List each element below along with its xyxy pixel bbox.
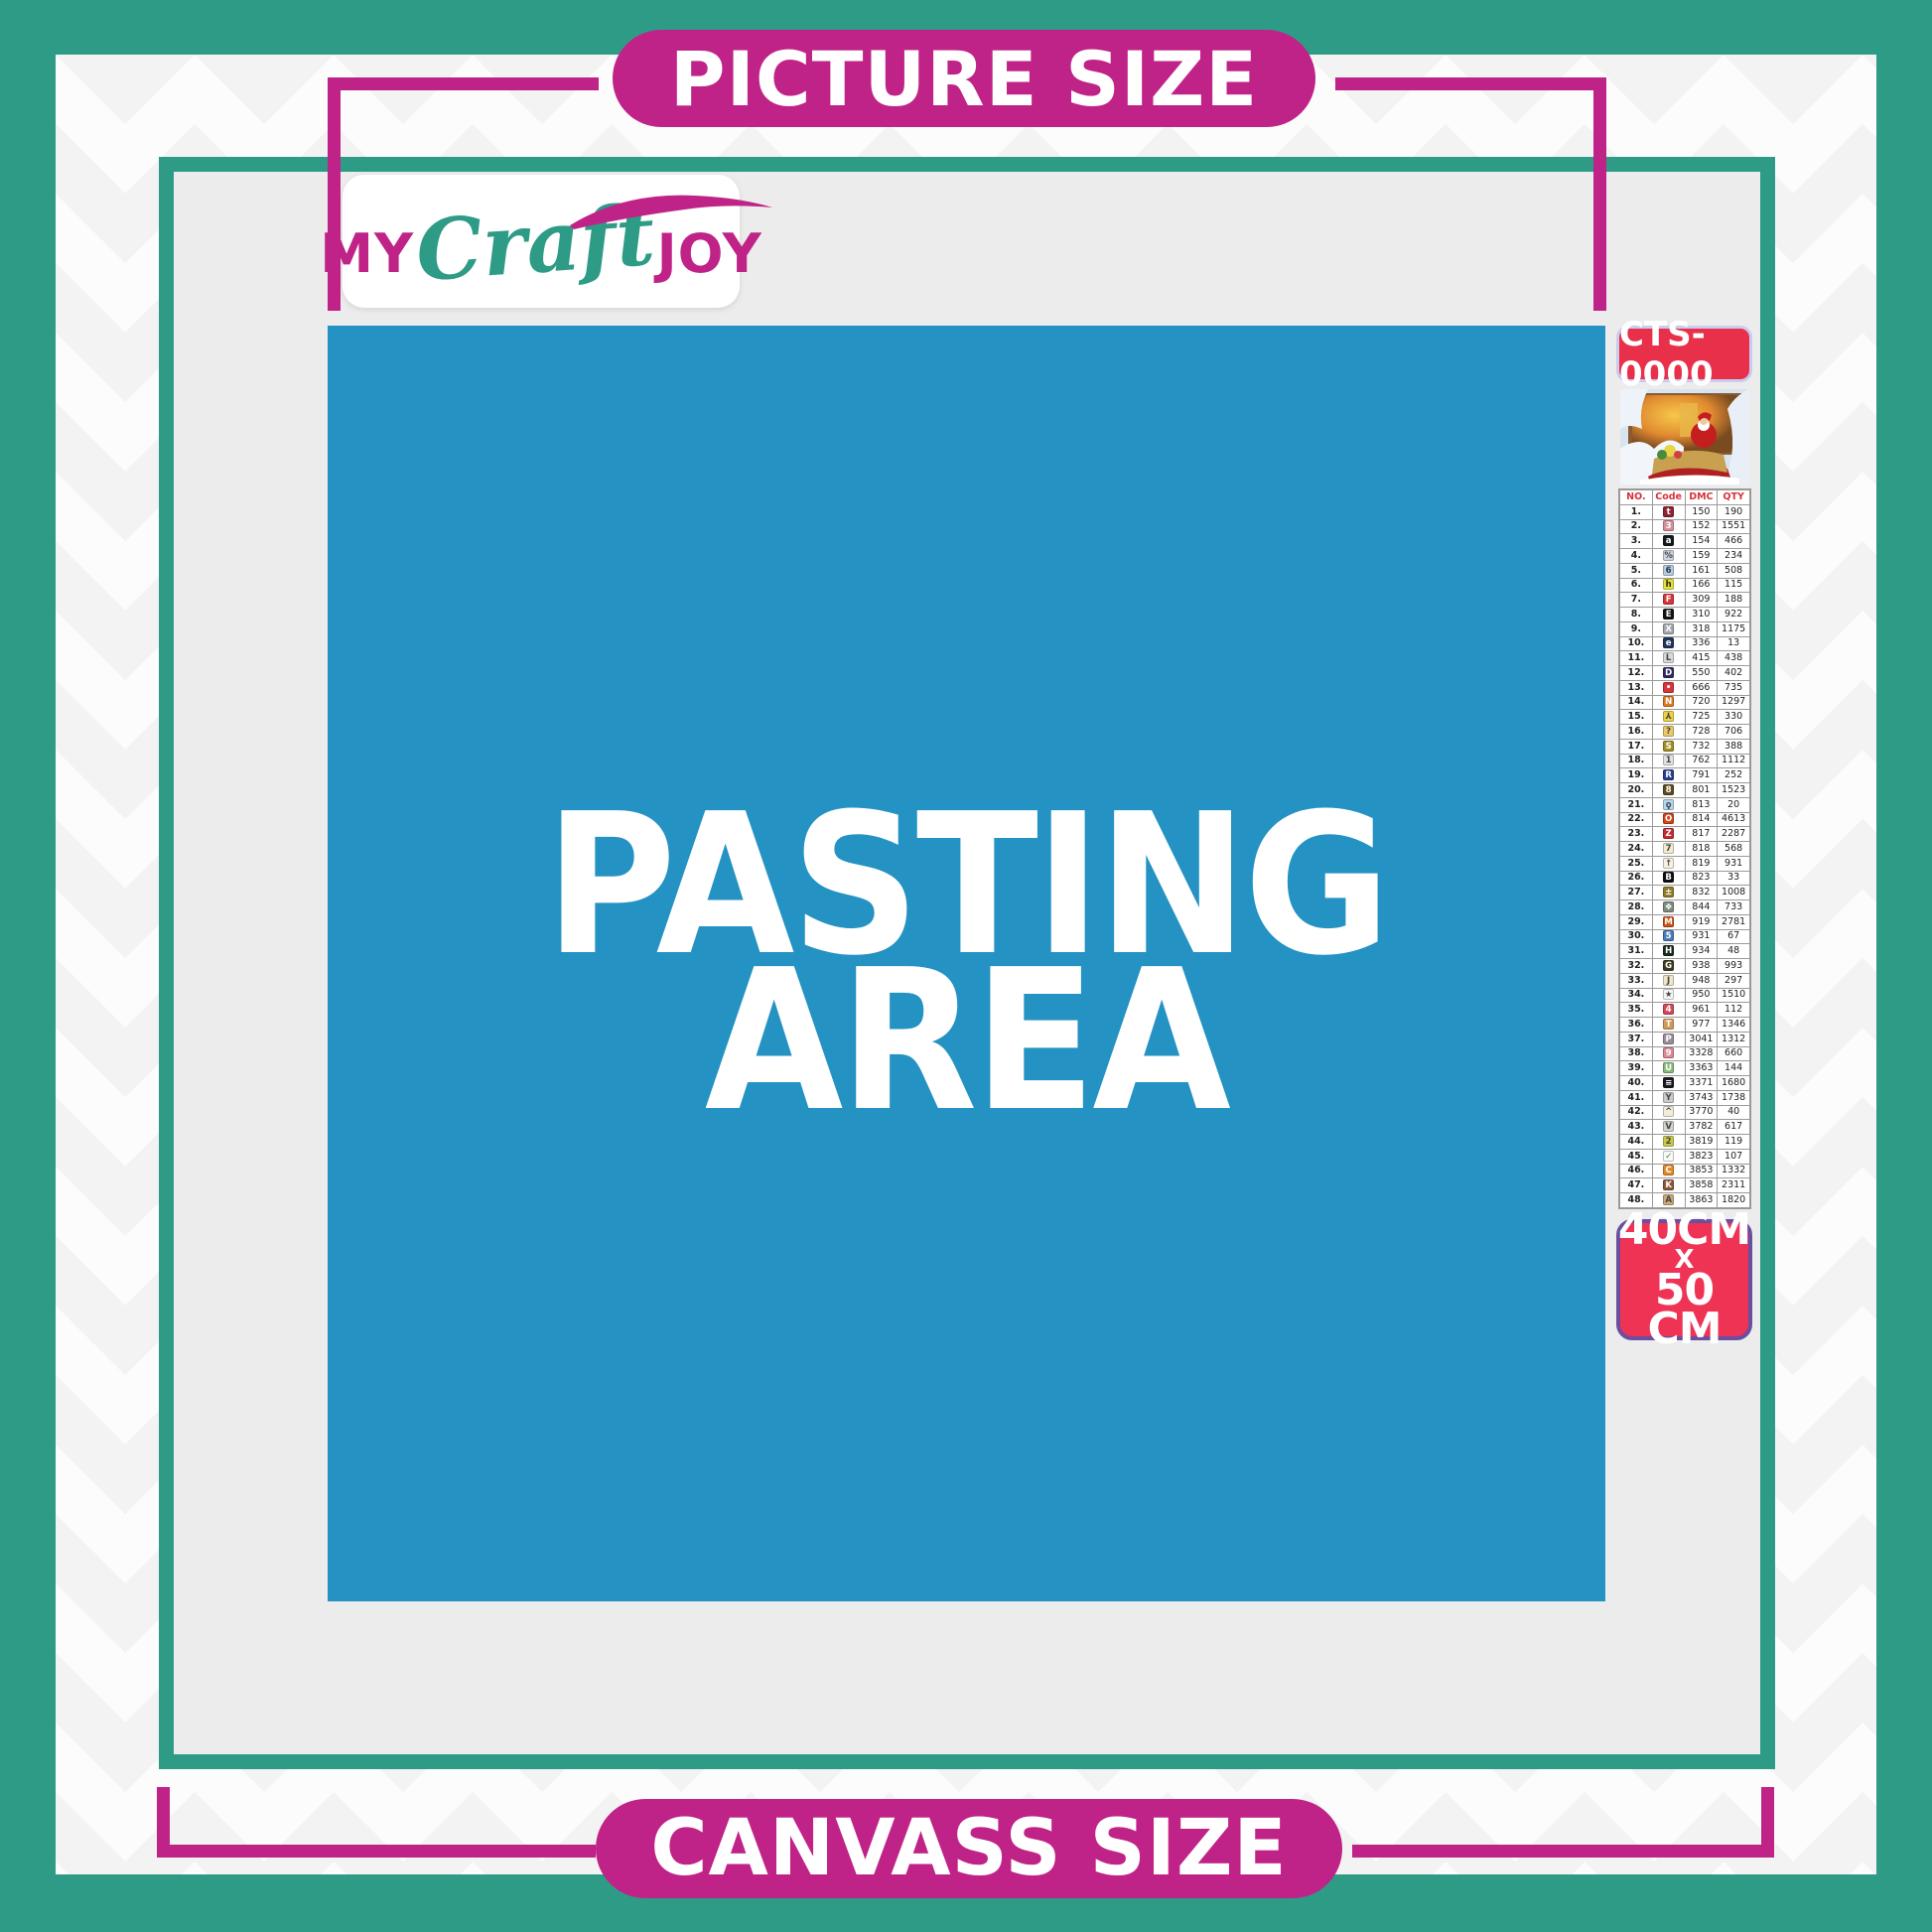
dmc-code: 154 [1685,534,1718,549]
dmc-code: 415 [1685,651,1718,666]
table-header-cell: Code [1652,490,1685,505]
picture-bracket-right-tick [1593,77,1606,311]
table-row: 23.Z8172287 [1620,827,1750,842]
table-row: 14.N7201297 [1620,695,1750,710]
symbol-cell: 6 [1652,563,1685,578]
dmc-code: 3853 [1685,1164,1718,1178]
symbol-chip: T [1663,1019,1674,1030]
symbol-cell: L [1652,651,1685,666]
table-row: 24.7818568 [1620,842,1750,857]
quantity: 733 [1718,900,1750,915]
symbol-cell: ↑ [1652,856,1685,871]
symbol-chip: M [1663,916,1674,927]
quantity: 1346 [1718,1018,1750,1033]
row-number: 5. [1620,563,1653,578]
table-row: 47.K38582311 [1620,1178,1750,1193]
symbol-chip: 2 [1663,1136,1674,1147]
table-row: 20.88011523 [1620,783,1750,798]
quantity: 1332 [1718,1164,1750,1178]
table-row: 42.^377040 [1620,1105,1750,1120]
symbol-cell: ★ [1652,988,1685,1003]
quantity: 466 [1718,534,1750,549]
canvass-bracket-bottom-right-line [1352,1845,1774,1858]
pasting-area-label: PASTING AREA [545,808,1387,1120]
table-row: 7.F309188 [1620,593,1750,608]
symbol-chip: a [1663,535,1674,546]
table-row: 25.↑819931 [1620,856,1750,871]
symbol-chip: Z [1663,828,1674,839]
kit-preview-image [1620,389,1749,484]
table-row: 30.593167 [1620,929,1750,944]
row-number: 8. [1620,608,1653,622]
row-number: 46. [1620,1164,1653,1178]
table-row: 46.C38531332 [1620,1164,1750,1178]
symbol-cell: ⅄ [1652,710,1685,725]
symbol-cell: K [1652,1178,1685,1193]
pasting-area: PASTING AREA [328,326,1605,1601]
table-row: 12.D550402 [1620,666,1750,681]
symbol-chip: • [1663,682,1674,693]
row-number: 41. [1620,1090,1653,1105]
row-number: 43. [1620,1120,1653,1135]
symbol-chip: ± [1663,887,1674,897]
table-row: 41.Y37431738 [1620,1090,1750,1105]
dmc-code: 318 [1685,621,1718,636]
symbol-cell: X [1652,621,1685,636]
quantity: 568 [1718,842,1750,857]
dmc-code: 720 [1685,695,1718,710]
symbol-chip: e [1663,637,1674,648]
row-number: 15. [1620,710,1653,725]
symbol-chip: E [1663,609,1674,620]
table-row: 9.X3181175 [1620,621,1750,636]
row-number: 33. [1620,973,1653,988]
symbol-chip: ⅄ [1663,711,1674,722]
brand-logo-card: MY Craft JOY [343,175,740,308]
dmc-code: 336 [1685,636,1718,651]
row-number: 3. [1620,534,1653,549]
dmc-code: 823 [1685,871,1718,886]
symbol-cell: J [1652,973,1685,988]
row-number: 7. [1620,593,1653,608]
symbol-cell: Z [1652,827,1685,842]
row-number: 25. [1620,856,1653,871]
dmc-code: 817 [1685,827,1718,842]
table-header-cell: DMC [1685,490,1718,505]
dmc-code: 3328 [1685,1046,1718,1061]
table-row: 26.B82333 [1620,871,1750,886]
kit-code-label: CTS-0000 [1619,315,1749,394]
dmc-code: 159 [1685,549,1718,564]
quantity: 735 [1718,680,1750,695]
table-row: 17.S732388 [1620,739,1750,754]
quantity: 388 [1718,739,1750,754]
row-number: 13. [1620,680,1653,695]
symbol-cell: M [1652,914,1685,929]
symbol-chip: 3 [1663,520,1674,531]
quantity: 297 [1718,973,1750,988]
dmc-code: 950 [1685,988,1718,1003]
row-number: 31. [1620,944,1653,959]
quantity: 112 [1718,1003,1750,1018]
dmc-code: 152 [1685,519,1718,534]
symbol-chip: U [1663,1062,1674,1073]
symbol-cell: S [1652,739,1685,754]
row-number: 21. [1620,797,1653,812]
quantity: 188 [1718,593,1750,608]
table-row: 8.E310922 [1620,608,1750,622]
canvass-bracket-right-tick [1761,1787,1774,1858]
dmc-code: 3823 [1685,1149,1718,1164]
symbol-cell: 9 [1652,1046,1685,1061]
table-row: 45.✓3823107 [1620,1149,1750,1164]
dmc-code: 310 [1685,608,1718,622]
quantity: 1008 [1718,886,1750,900]
symbol-chip: ❖ [1663,901,1674,912]
symbol-cell: ❖ [1652,900,1685,915]
picture-bracket-top-right-line [1335,77,1606,90]
quantity: 67 [1718,929,1750,944]
symbol-cell: ? [1652,725,1685,740]
row-number: 29. [1620,914,1653,929]
symbol-chip: P [1663,1034,1674,1044]
table-row: 40.≡33711680 [1620,1076,1750,1091]
quantity: 33 [1718,871,1750,886]
symbol-chip: V [1663,1121,1674,1132]
row-number: 38. [1620,1046,1653,1061]
symbol-chip: C [1663,1165,1674,1175]
dmc-code: 791 [1685,768,1718,783]
symbol-cell: 2 [1652,1135,1685,1150]
symbol-cell: t [1652,504,1685,519]
picture-size-label: PICTURE SIZE [670,35,1258,123]
symbol-chip: N [1663,696,1674,707]
table-row: 1.t150190 [1620,504,1750,519]
symbol-cell: 7 [1652,842,1685,857]
symbol-chip: L [1663,652,1674,663]
symbol-cell: 3 [1652,519,1685,534]
dmc-code: 938 [1685,959,1718,974]
canvass-size-banner: CANVASS SIZE [596,1799,1342,1898]
dmc-code: 762 [1685,754,1718,768]
table-row: 28.❖844733 [1620,900,1750,915]
symbol-chip: S [1663,741,1674,752]
symbol-chip: % [1663,550,1674,561]
quantity: 119 [1718,1135,1750,1150]
dmc-code: 3041 [1685,1032,1718,1046]
dmc-code: 977 [1685,1018,1718,1033]
dmc-code: 3782 [1685,1120,1718,1135]
dmc-code: 934 [1685,944,1718,959]
row-number: 6. [1620,578,1653,593]
symbol-chip: 4 [1663,1004,1674,1015]
row-number: 34. [1620,988,1653,1003]
brand-logo: MY Craft JOY [320,202,762,281]
row-number: 19. [1620,768,1653,783]
row-number: 47. [1620,1178,1653,1193]
quantity: 1112 [1718,754,1750,768]
dmc-code: 732 [1685,739,1718,754]
dmc-code: 813 [1685,797,1718,812]
row-number: 27. [1620,886,1653,900]
symbol-chip: 5 [1663,930,1674,941]
row-number: 39. [1620,1061,1653,1076]
symbol-chip: h [1663,579,1674,590]
table-row: 11.L415438 [1620,651,1750,666]
row-number: 24. [1620,842,1653,857]
row-number: 2. [1620,519,1653,534]
quantity: 20 [1718,797,1750,812]
canvas-size-badge: 40CM X 50 CM [1616,1219,1752,1340]
table-row: 3.a154466 [1620,534,1750,549]
row-number: 4. [1620,549,1653,564]
dmc-code: 819 [1685,856,1718,871]
symbol-chip: G [1663,960,1674,971]
symbol-chip: ϙ [1663,799,1674,810]
table-row: 4.%159234 [1620,549,1750,564]
symbol-chip: ↑ [1663,858,1674,869]
quantity: 2287 [1718,827,1750,842]
symbol-cell: a [1652,534,1685,549]
dmc-code: 728 [1685,725,1718,740]
table-header-cell: QTY [1718,490,1750,505]
row-number: 37. [1620,1032,1653,1046]
symbol-cell: D [1652,666,1685,681]
table-row: 44.23819119 [1620,1135,1750,1150]
symbol-cell: N [1652,695,1685,710]
symbol-cell: Y [1652,1090,1685,1105]
symbol-cell: ✓ [1652,1149,1685,1164]
symbol-chip: D [1663,667,1674,678]
table-row: 6.h166115 [1620,578,1750,593]
quantity: 1551 [1718,519,1750,534]
symbol-chip: ★ [1663,989,1674,1000]
quantity: 1680 [1718,1076,1750,1091]
table-row: 22.O8144613 [1620,812,1750,827]
quantity: 4613 [1718,812,1750,827]
dmc-code: 931 [1685,929,1718,944]
row-number: 36. [1620,1018,1653,1033]
row-number: 40. [1620,1076,1653,1091]
row-number: 44. [1620,1135,1653,1150]
quantity: 2311 [1718,1178,1750,1193]
row-number: 28. [1620,900,1653,915]
dmc-code: 3819 [1685,1135,1718,1150]
dmc-code: 948 [1685,973,1718,988]
quantity: 508 [1718,563,1750,578]
dmc-code: 550 [1685,666,1718,681]
table-row: 13.•666735 [1620,680,1750,695]
table-header-row: NO.CodeDMCQTY [1620,490,1750,505]
symbol-chip: ^ [1663,1106,1674,1117]
canvass-bracket-bottom-left-line [157,1845,596,1858]
quantity: 252 [1718,768,1750,783]
table-row: 29.M9192781 [1620,914,1750,929]
quantity: 617 [1718,1120,1750,1135]
table-row: 38.93328660 [1620,1046,1750,1061]
quantity: 107 [1718,1149,1750,1164]
symbol-chip: 7 [1663,843,1674,854]
row-number: 26. [1620,871,1653,886]
dmc-code: 3770 [1685,1105,1718,1120]
quantity: 1510 [1718,988,1750,1003]
table-header-cell: NO. [1620,490,1653,505]
symbol-chip: 9 [1663,1047,1674,1058]
symbol-chip: B [1663,872,1674,883]
symbol-cell: 5 [1652,929,1685,944]
table-row: 33.J948297 [1620,973,1750,988]
symbol-cell: ^ [1652,1105,1685,1120]
quantity: 40 [1718,1105,1750,1120]
symbol-cell: 8 [1652,783,1685,798]
dmc-code: 725 [1685,710,1718,725]
quantity: 2781 [1718,914,1750,929]
table-row: 31.H93448 [1620,944,1750,959]
quantity: 402 [1718,666,1750,681]
quantity: 438 [1718,651,1750,666]
table-row: 19.R791252 [1620,768,1750,783]
symbol-chip: ✓ [1663,1151,1674,1162]
row-number: 45. [1620,1149,1653,1164]
row-number: 12. [1620,666,1653,681]
dmc-code: 961 [1685,1003,1718,1018]
quantity: 48 [1718,944,1750,959]
quantity: 1175 [1718,621,1750,636]
quantity: 993 [1718,959,1750,974]
quantity: 234 [1718,549,1750,564]
logo-joy-text: JOY [657,227,762,281]
quantity: 13 [1718,636,1750,651]
symbol-chip: R [1663,769,1674,780]
symbol-chip: t [1663,506,1674,517]
symbol-cell: h [1652,578,1685,593]
symbol-cell: C [1652,1164,1685,1178]
table-row: 37.P30411312 [1620,1032,1750,1046]
row-number: 20. [1620,783,1653,798]
row-number: 10. [1620,636,1653,651]
row-number: 9. [1620,621,1653,636]
kit-code-badge: CTS-0000 [1616,326,1752,382]
symbol-cell: 1 [1652,754,1685,768]
row-number: 11. [1620,651,1653,666]
dmc-code: 844 [1685,900,1718,915]
dmc-code: 818 [1685,842,1718,857]
dmc-code: 832 [1685,886,1718,900]
picture-bracket-top-left-line [328,77,599,90]
symbol-chip: 1 [1663,755,1674,765]
symbol-cell: O [1652,812,1685,827]
symbol-cell: B [1652,871,1685,886]
row-number: 22. [1620,812,1653,827]
symbol-cell: U [1652,1061,1685,1076]
symbol-cell: V [1652,1120,1685,1135]
row-number: 18. [1620,754,1653,768]
quantity: 115 [1718,578,1750,593]
brush-swoosh-icon [566,186,774,231]
table-row: 2.31521551 [1620,519,1750,534]
poster: PICTURE SIZE CANVASS SIZE PASTING AREA M… [0,0,1932,1932]
table-row: 34.★9501510 [1620,988,1750,1003]
symbol-chip: 6 [1663,565,1674,576]
quantity: 660 [1718,1046,1750,1061]
symbol-cell: 4 [1652,1003,1685,1018]
symbol-cell: • [1652,680,1685,695]
symbol-cell: ± [1652,886,1685,900]
row-number: 16. [1620,725,1653,740]
symbol-cell: F [1652,593,1685,608]
table-row: 36.T9771346 [1620,1018,1750,1033]
table-row: 10.e33613 [1620,636,1750,651]
symbol-cell: e [1652,636,1685,651]
table-row: 35.4961112 [1620,1003,1750,1018]
dmc-code: 814 [1685,812,1718,827]
dmc-code: 309 [1685,593,1718,608]
symbol-chip: O [1663,813,1674,824]
table-row: 5.6161508 [1620,563,1750,578]
quantity: 1312 [1718,1032,1750,1046]
canvass-size-label: CANVASS SIZE [650,1804,1287,1893]
size-width-label: 40CM [1618,1210,1750,1250]
quantity: 1297 [1718,695,1750,710]
symbol-chip: ≡ [1663,1077,1674,1088]
symbol-cell: R [1652,768,1685,783]
table-row: 32.G938993 [1620,959,1750,974]
dmc-color-table-wrap: NO.CodeDMCQTY1.t1501902.315215513.a15446… [1618,488,1751,1209]
dmc-code: 3371 [1685,1076,1718,1091]
quantity: 931 [1718,856,1750,871]
logo-my-text: MY [320,227,414,281]
symbol-cell: ≡ [1652,1076,1685,1091]
symbol-chip: X [1663,623,1674,634]
table-row: 27.±8321008 [1620,886,1750,900]
symbol-cell: P [1652,1032,1685,1046]
symbol-cell: % [1652,549,1685,564]
dmc-code: 161 [1685,563,1718,578]
dmc-code: 166 [1685,578,1718,593]
quantity: 922 [1718,608,1750,622]
row-number: 1. [1620,504,1653,519]
quantity: 330 [1718,710,1750,725]
quantity: 190 [1718,504,1750,519]
dmc-code: 666 [1685,680,1718,695]
table-row: 15.⅄725330 [1620,710,1750,725]
quantity: 1523 [1718,783,1750,798]
dmc-code: 3858 [1685,1178,1718,1193]
quantity: 144 [1718,1061,1750,1076]
symbol-cell: E [1652,608,1685,622]
dmc-code: 3363 [1685,1061,1718,1076]
table-row: 16.?728706 [1620,725,1750,740]
quantity: 1738 [1718,1090,1750,1105]
row-number: 23. [1620,827,1653,842]
table-row: 18.17621112 [1620,754,1750,768]
symbol-chip: H [1663,945,1674,956]
row-number: 35. [1620,1003,1653,1018]
symbol-cell: T [1652,1018,1685,1033]
dmc-code: 919 [1685,914,1718,929]
symbol-chip: Y [1663,1092,1674,1103]
table-row: 43.V3782617 [1620,1120,1750,1135]
symbol-cell: G [1652,959,1685,974]
dmc-code: 150 [1685,504,1718,519]
dmc-code: 801 [1685,783,1718,798]
row-number: 30. [1620,929,1653,944]
symbol-chip: ? [1663,726,1674,737]
row-number: 32. [1620,959,1653,974]
symbol-cell: H [1652,944,1685,959]
row-number: 42. [1620,1105,1653,1120]
table-row: 21.ϙ81320 [1620,797,1750,812]
